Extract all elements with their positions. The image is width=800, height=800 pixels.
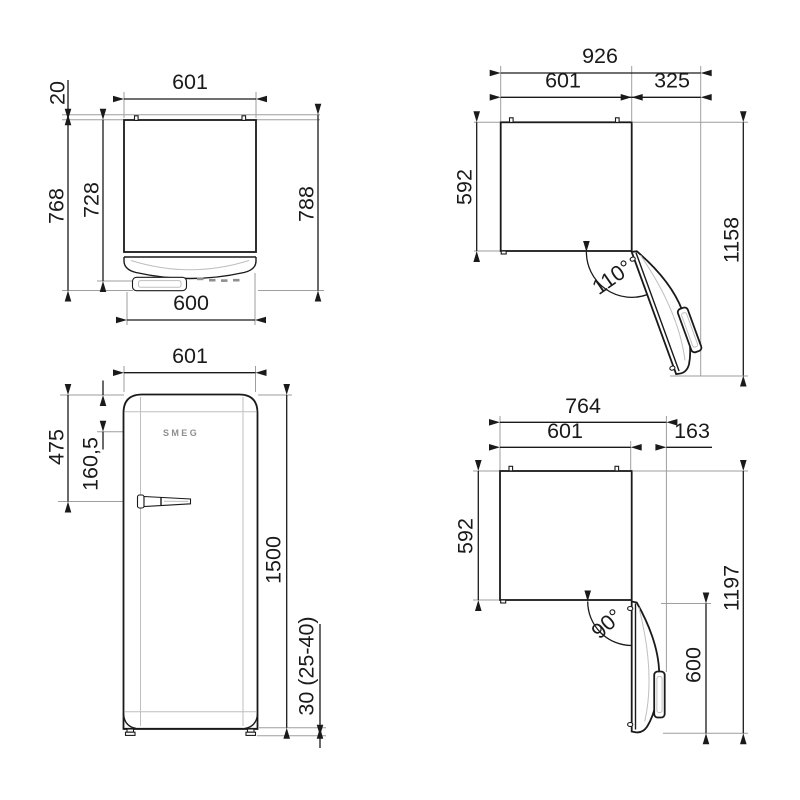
hinge-pin-icon <box>616 118 620 123</box>
cabinet-top-outline <box>124 120 256 252</box>
view-top-open-90: 764 601 163 592 1197 600 90° <box>454 394 748 733</box>
dim-label-overall-width: 764 <box>565 394 601 418</box>
foot-base <box>126 732 136 735</box>
dim-label-overall-width: 926 <box>582 44 618 68</box>
dim-label-handle-from-top: 475 <box>45 429 69 465</box>
dimension-drawing-page: 601 20 768 728 788 600 926 601 325 592 1… <box>0 0 800 800</box>
corner-foot-tick <box>501 251 506 254</box>
hinge-pin-icon <box>509 466 513 471</box>
dim-label-width-bottom: 600 <box>173 291 209 315</box>
hinge-pin-icon <box>510 118 514 123</box>
dim-label-wall-clearance: 20 <box>46 81 70 105</box>
vent-dash <box>209 279 216 282</box>
dim-label-depth-overall: 788 <box>295 186 319 222</box>
view-front: SMEG 601 475 160,5 1500 30 (25-40) <box>45 344 326 748</box>
corner-foot-tick <box>501 600 506 603</box>
brand-logo: SMEG <box>163 428 199 438</box>
fridge-front-outline <box>124 395 258 730</box>
open-door-90 <box>628 602 665 733</box>
dim-label-overall-depth: 1197 <box>720 565 744 611</box>
hinge-pin-icon <box>242 116 246 121</box>
view-top-closed: 601 20 768 728 788 600 <box>45 70 324 325</box>
dim-label-door-swing: 325 <box>654 69 690 93</box>
foot-base <box>246 732 256 735</box>
dim-label-depth-body: 728 <box>80 182 104 218</box>
dim-label-angle: 90° <box>587 604 627 644</box>
view-top-open-110: 926 601 325 592 1158 110° <box>453 44 748 376</box>
vent-dash <box>197 278 204 281</box>
door-handle-top-view <box>133 277 187 290</box>
dim-label-depth: 592 <box>454 518 478 554</box>
dim-label-overall-depth: 1158 <box>720 217 744 263</box>
door-front-curve <box>124 257 256 279</box>
cabinet-top-outline <box>501 122 632 251</box>
dim-label-door-width: 600 <box>682 647 706 683</box>
dim-label-controls-from-top: 160,5 <box>79 437 103 491</box>
dim-label-height: 1500 <box>262 536 286 584</box>
dim-label-depth-with-door: 768 <box>45 188 69 224</box>
dim-label-door-swing: 163 <box>674 419 710 443</box>
hinge-pin-icon <box>135 116 139 121</box>
hinge-pin-icon <box>615 466 619 471</box>
open-door-110 <box>628 241 708 377</box>
vent-dash <box>221 279 228 282</box>
dim-label-width-top: 601 <box>172 70 208 94</box>
dim-label-width: 601 <box>172 344 208 368</box>
technical-drawing-canvas: 601 20 768 728 788 600 926 601 325 592 1… <box>0 0 800 800</box>
dim-label-feet: 30 (25-40) <box>295 616 319 715</box>
door-inner-curve <box>131 261 249 270</box>
door-handle-cap <box>138 495 145 508</box>
cabinet-top-outline <box>500 471 632 600</box>
vent-dash <box>233 279 240 282</box>
dim-label-body-width: 601 <box>547 419 583 443</box>
dim-label-body-width: 601 <box>545 69 581 93</box>
dim-label-depth: 592 <box>453 169 477 205</box>
